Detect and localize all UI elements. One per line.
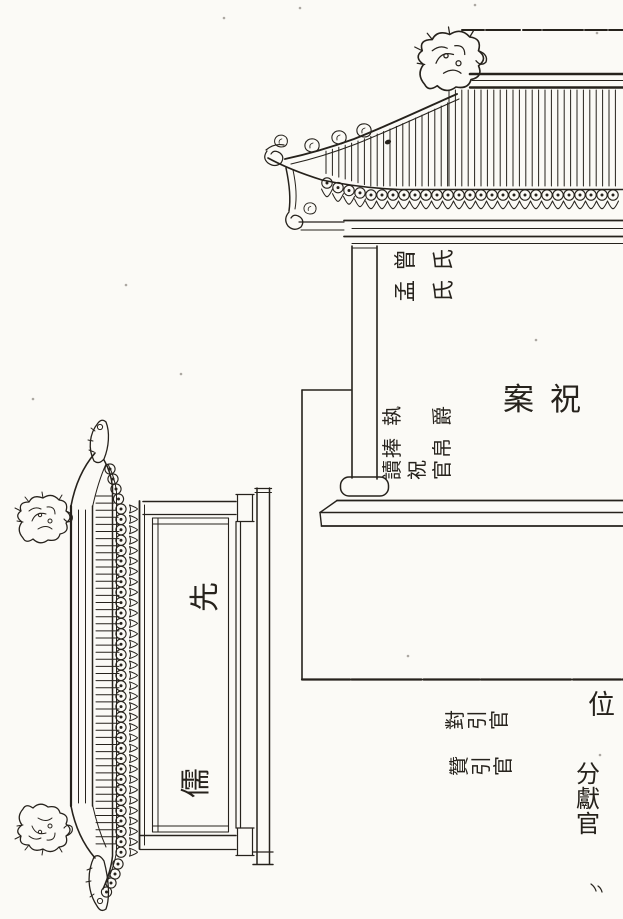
official-char: 分 [576, 763, 600, 788]
officiant-char: 祝 [408, 460, 428, 480]
line-art [0, 0, 623, 919]
tablet-zeng-shi: 曾 氏 [395, 249, 455, 271]
tablet-body [140, 488, 274, 865]
ridge-band [71, 453, 106, 858]
position-marker-wei: 位 [588, 690, 615, 721]
plaque-ru: 儒 [182, 766, 212, 800]
eave-spike-top [88, 420, 108, 462]
tablet-char: 曾 [395, 249, 417, 271]
lintel-beams [344, 221, 623, 244]
column [341, 246, 389, 496]
usher-char: 官 [494, 756, 514, 776]
usher-char: 對 [446, 710, 466, 730]
usher-char: 引 [472, 756, 492, 776]
usher-dui-yin-guan: 對 引 官 [446, 710, 510, 730]
official-char: 獻 [576, 788, 600, 813]
officiant-char: 爵 [433, 406, 453, 426]
scan-mark [591, 884, 602, 892]
usher-char: 贊 [450, 756, 470, 776]
tablet-name-block: 曾 氏 孟 氏 [395, 249, 455, 302]
officiant-char: 捧 [383, 438, 403, 458]
eave-tile-ends [322, 178, 619, 209]
usher-char: 官 [490, 710, 510, 730]
gable-verge [285, 94, 459, 164]
ridge-dragon-top-icon [15, 492, 72, 543]
officiant-char: 讀 [383, 460, 403, 480]
usher-zan-yin-guan: 贊 引 官 [450, 756, 514, 776]
officiant-char: 帛 [433, 438, 453, 458]
plaque-xian: 先 [191, 580, 221, 614]
label-feng-bo: 捧 帛 [383, 438, 453, 458]
altar-label-zhu-an: 案 祝 [503, 384, 581, 417]
courtyard-outline [302, 390, 623, 680]
tablet-char: 氏 [433, 280, 455, 302]
altar-char: 祝 [550, 384, 581, 417]
label-du-zhu-guan: 讀 祝 官 [383, 460, 453, 480]
ink-blot [384, 139, 392, 145]
officiant-char: 執 [383, 406, 403, 426]
tablet-char: 氏 [433, 249, 455, 271]
roof-tile-lines [96, 496, 119, 844]
main-hall [265, 27, 623, 680]
label-zhi-jue: 執 爵 [383, 406, 453, 426]
woodblock-ritual-diagram-page: 曾 氏 孟 氏 執 爵 捧 帛 讀 祝 官 案 祝 位 對 引 官 [0, 0, 623, 919]
offering-official-fen-xian-guan: 分 獻 官 [572, 763, 604, 839]
altar-char: 案 [503, 384, 534, 417]
tablet-meng-shi: 孟 氏 [395, 280, 455, 302]
eave-corner-curl [265, 135, 288, 165]
ridge-dragon-bottom-icon [15, 804, 72, 855]
tablet-char: 孟 [395, 280, 417, 302]
official-char: 官 [576, 813, 600, 838]
officiant-char: 官 [433, 460, 453, 480]
terrace-platform [320, 501, 623, 527]
scan-specks [32, 4, 602, 757]
eave-edge [268, 158, 623, 190]
usher-char: 引 [468, 710, 488, 730]
officiants-block: 執 爵 捧 帛 讀 祝 官 [383, 406, 453, 480]
side-shrine [15, 420, 273, 910]
